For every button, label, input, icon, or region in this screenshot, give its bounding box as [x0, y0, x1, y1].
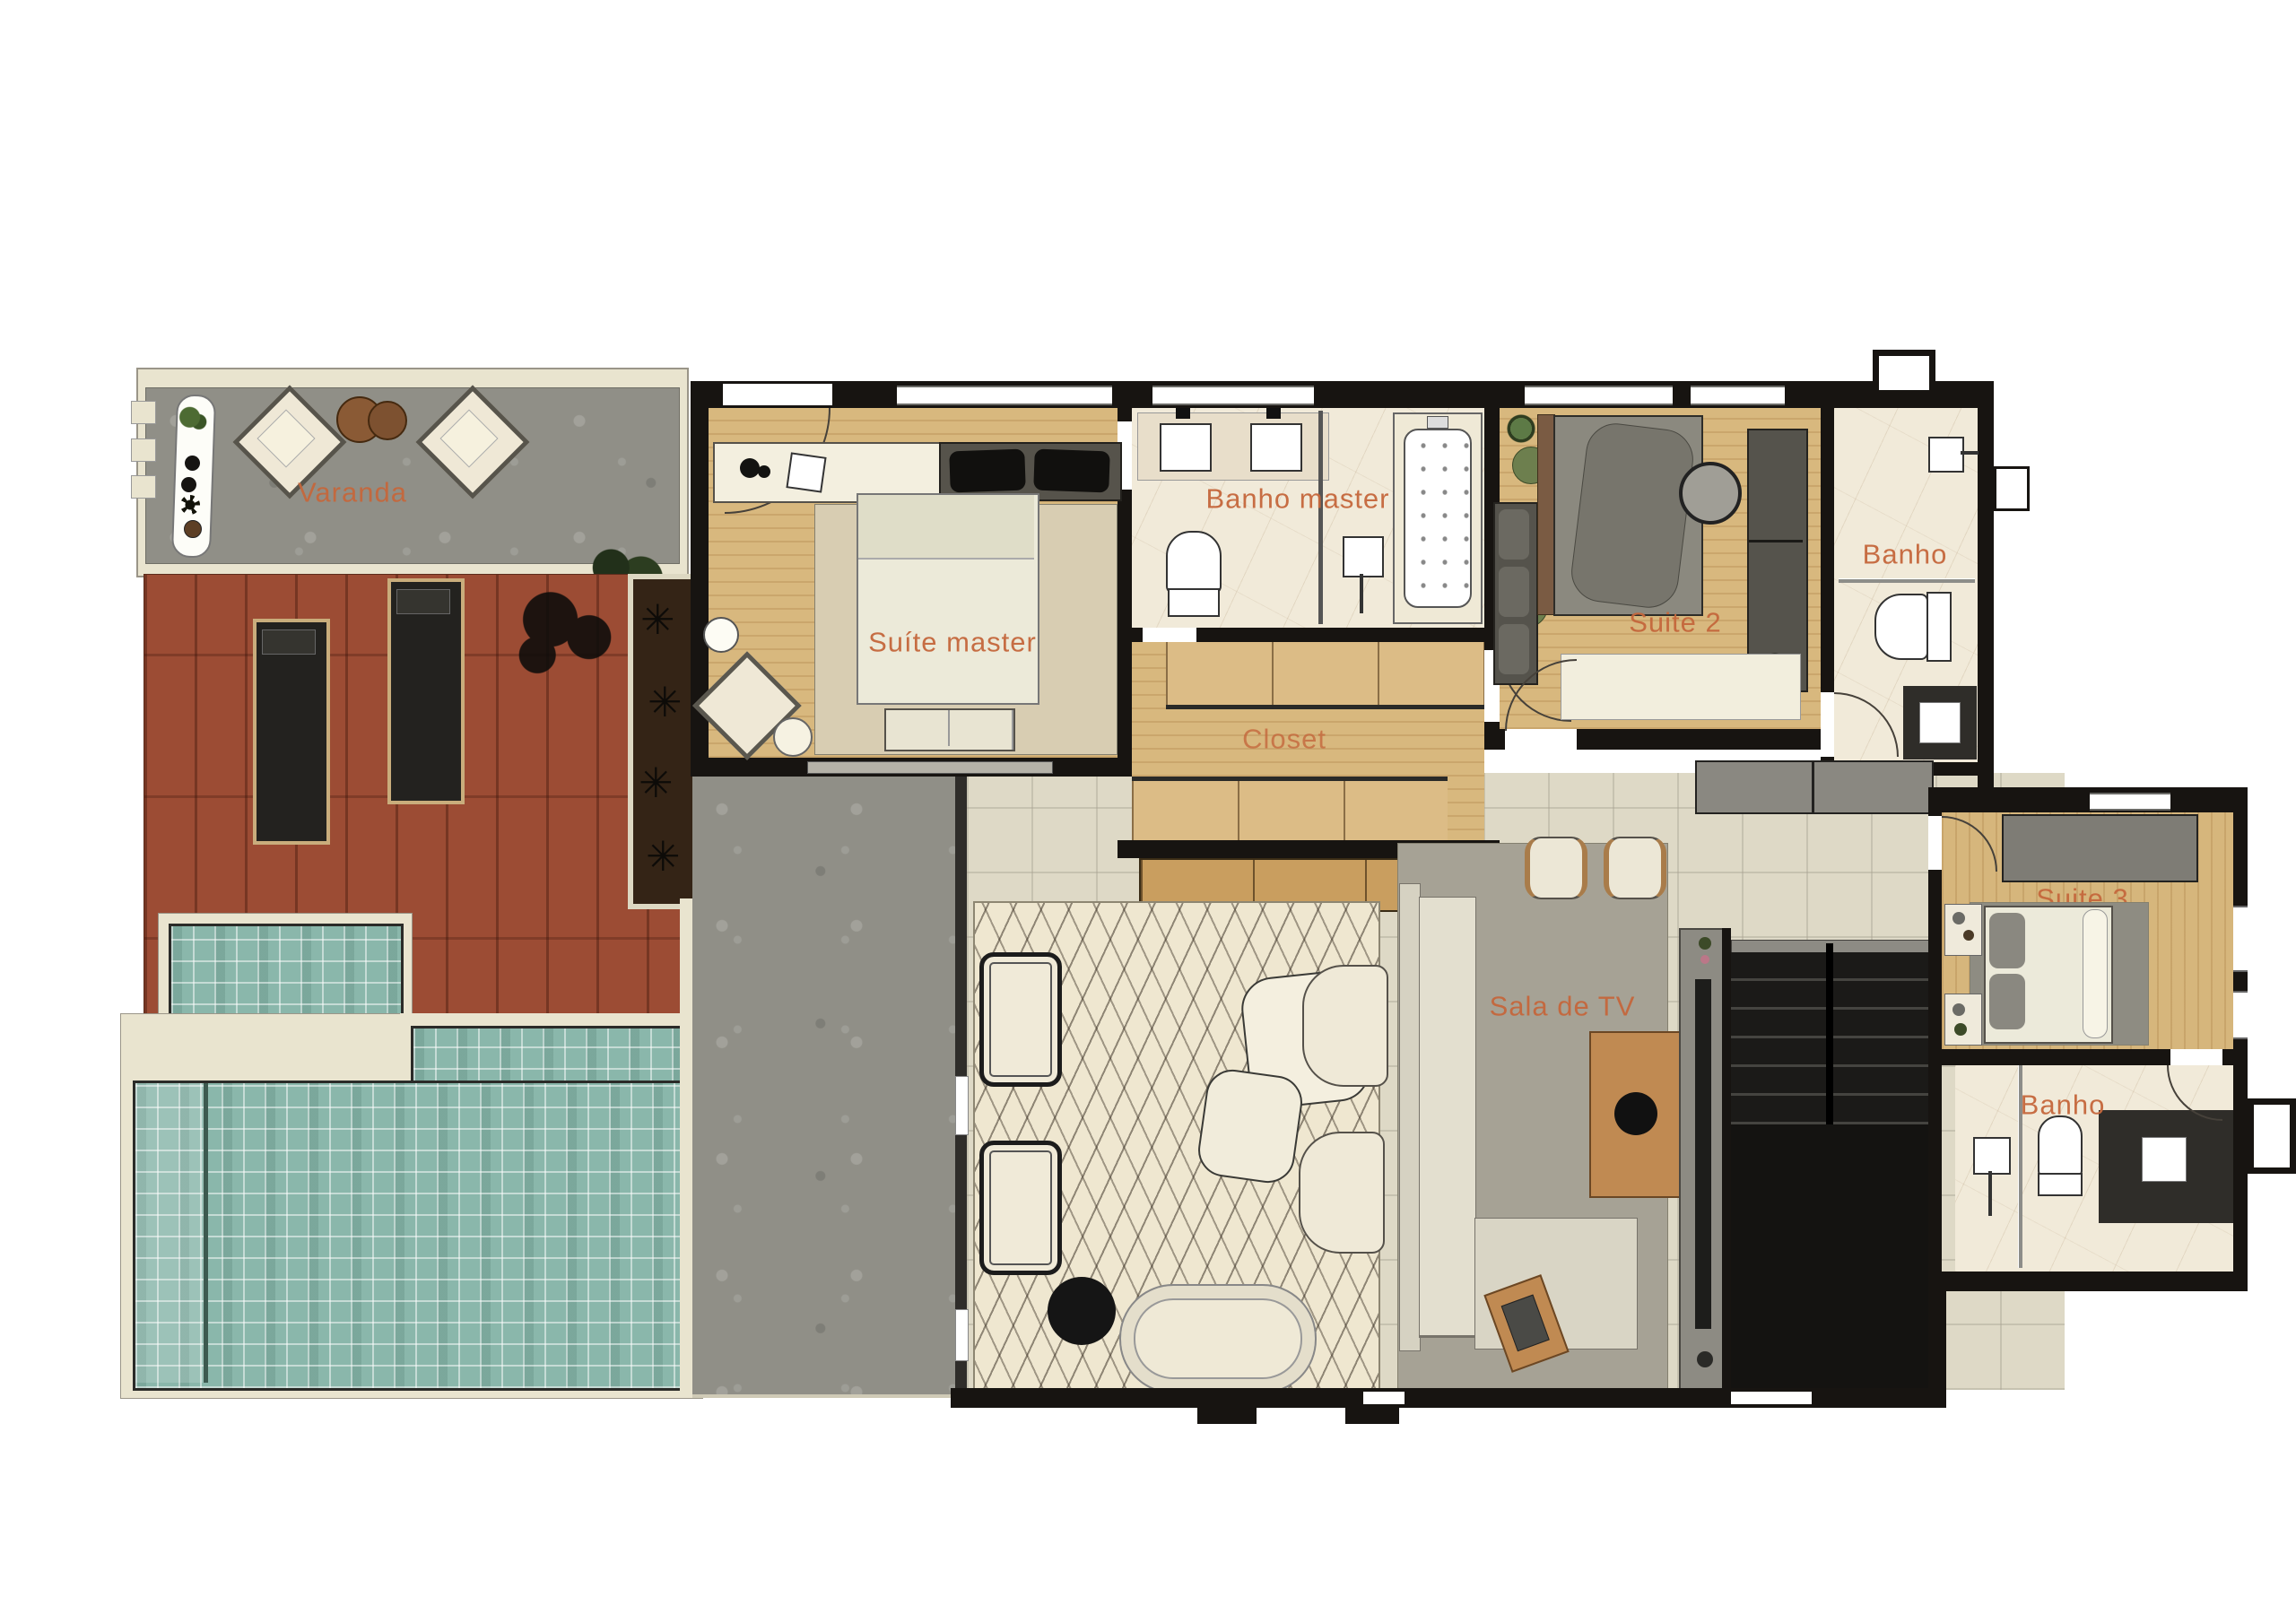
- wardrobe-divider: [1749, 540, 1803, 542]
- duvet-roll: [2083, 909, 2108, 1038]
- stone-patio: [692, 777, 956, 1398]
- pot-icon: [185, 456, 200, 471]
- room-label-banho-master: Banho master: [1206, 485, 1390, 513]
- bench-white: [1561, 654, 1801, 720]
- wall-stub: [1197, 1408, 1257, 1424]
- toilet-tank: [1926, 592, 1952, 662]
- sliding-door-glass: [955, 1309, 969, 1361]
- wall-suite3-east: [2233, 787, 2248, 1291]
- sofa-back: [1399, 883, 1421, 1351]
- bath-counter: [2099, 1110, 2233, 1223]
- room-label-suite-2: Suite 2: [1629, 609, 1722, 637]
- wall-stub: [131, 475, 156, 499]
- sink: [1250, 423, 1302, 472]
- patio-curb: [680, 898, 692, 1394]
- plant-icon: [180, 495, 200, 515]
- shower-stem: [1961, 451, 1979, 455]
- pot-icon: [181, 477, 196, 492]
- bench-divider: [948, 710, 950, 746]
- potted-plant-icon: [1507, 414, 1535, 443]
- wall-banho3-south: [1942, 1271, 2248, 1291]
- door-opening: [1143, 628, 1196, 642]
- door-opening: [1731, 1392, 1812, 1404]
- toilet: [1166, 531, 1222, 594]
- bed-suite3: [1984, 906, 2113, 1044]
- faucet-icon: [1266, 408, 1281, 419]
- wall-stub: [1345, 1408, 1399, 1424]
- door-opening: [1928, 816, 1942, 870]
- pot-icon: [184, 520, 202, 538]
- sliding-door: [807, 761, 1053, 774]
- window: [1152, 386, 1314, 405]
- window-shaft: [2248, 1098, 2296, 1174]
- side-table-black: [1048, 1277, 1116, 1345]
- room-label-banho-2: Banho: [1863, 541, 1948, 568]
- sofa-seat: [1419, 897, 1476, 1338]
- lounger-headrest: [396, 589, 450, 614]
- shower-stem: [1360, 574, 1363, 613]
- pouf-sketch: [1195, 1066, 1306, 1186]
- sliding-door-glass: [955, 1076, 969, 1135]
- dresser: [2002, 814, 2198, 882]
- shower-stem: [1988, 1171, 1992, 1216]
- sofa-cushion: [1499, 509, 1529, 560]
- candle-decor-icon: [758, 465, 770, 478]
- toilet: [2038, 1115, 2083, 1176]
- nightstand: [1944, 904, 1982, 956]
- lounger-headrest: [262, 629, 316, 655]
- plant-icon: ✳: [648, 678, 683, 726]
- floor-plan: Varanda ✳ ✳ ✳ ✳: [0, 0, 2296, 1623]
- wardrobe: [1747, 429, 1808, 692]
- swivel-chair: [1299, 1132, 1385, 1254]
- accent-chair: [979, 952, 1062, 1087]
- closet-cabinets-bottom: [1132, 777, 1448, 848]
- standing-mirror-round: [1679, 462, 1742, 525]
- plant-icon: [178, 404, 208, 434]
- bed-pillow-large: [1568, 420, 1696, 611]
- plant-icon: ✳: [646, 832, 681, 881]
- pouf-round: [773, 717, 813, 757]
- tray-icon: [786, 452, 826, 492]
- remote-icon: [1501, 1295, 1550, 1352]
- sofa-cushion: [1499, 624, 1529, 674]
- nightstand: [1944, 994, 1982, 1046]
- bed-master: [857, 493, 1039, 705]
- bathtub: [1393, 412, 1483, 624]
- shower-glass: [1839, 578, 1975, 583]
- tv-screen: [1695, 979, 1711, 1329]
- plant-icon: ✳: [640, 595, 675, 644]
- coffee-table-wood: [1589, 1031, 1683, 1198]
- speaker-icon: [1697, 1351, 1713, 1367]
- room-label-banho-3: Banho: [2021, 1091, 2106, 1119]
- sink: [2142, 1137, 2187, 1182]
- room-label-sala-de-tv: Sala de TV: [1490, 993, 1636, 1020]
- sofa-cushion: [1499, 567, 1529, 617]
- bedroom-sofa: [1493, 502, 1538, 685]
- duvet-fold: [858, 495, 1034, 560]
- bathtub-basin: [1404, 429, 1472, 608]
- candle-decor-icon: [740, 458, 760, 478]
- wall-tv-stairs: [1722, 928, 1731, 1390]
- window: [1525, 386, 1673, 405]
- table-decor-black: [1614, 1092, 1657, 1135]
- window: [1691, 386, 1785, 405]
- shower-head-icon: [1343, 536, 1384, 577]
- window-shaft: [1873, 350, 1935, 396]
- door-opening: [723, 384, 832, 405]
- window: [2090, 793, 2170, 811]
- barrel-stool: [1604, 837, 1666, 899]
- shower-head-icon: [1973, 1137, 2011, 1175]
- room-label-closet: Closet: [1242, 725, 1326, 753]
- barrel-stool: [1525, 837, 1587, 899]
- swivel-chair: [1302, 965, 1388, 1087]
- wall-stub: [1994, 466, 2030, 511]
- sun-lounger: [253, 619, 330, 845]
- partition: [1318, 411, 1323, 624]
- plant-icon: ✳: [639, 759, 674, 807]
- bed-suite2-headboard: [1537, 414, 1555, 615]
- window: [2233, 906, 2248, 972]
- wall-stub: [131, 401, 156, 424]
- toilet: [1874, 594, 1928, 660]
- bed-bench: [884, 708, 1015, 751]
- plant-icon: [1954, 1023, 1967, 1036]
- bed-pillow: [1989, 974, 2025, 1029]
- decor-icon: [1963, 930, 1974, 941]
- door-opening: [1363, 1392, 1405, 1404]
- tree-silhouette: [499, 572, 628, 690]
- window: [897, 386, 1112, 405]
- tub-control: [1427, 416, 1448, 429]
- window: [2233, 991, 2248, 1039]
- pool-steps: [135, 1083, 208, 1383]
- pillow: [949, 449, 1026, 493]
- door-opening: [1821, 692, 1834, 757]
- door-opening: [2170, 1049, 2222, 1065]
- faucet-icon: [1176, 408, 1190, 419]
- stairs-rail: [1826, 943, 1833, 1124]
- shower-head-icon: [1928, 437, 1964, 473]
- sink: [1919, 702, 1961, 743]
- plant-icon: [1699, 937, 1711, 950]
- toilet-base: [2038, 1173, 2083, 1196]
- accent-chair: [979, 1141, 1062, 1275]
- wall-connector: [1928, 1291, 1946, 1408]
- sink: [1160, 423, 1212, 472]
- bed-suite2: [1553, 415, 1703, 616]
- pillow: [1033, 449, 1110, 493]
- decor-icon: [1952, 1003, 1965, 1016]
- toilet-tank: [1168, 588, 1220, 617]
- decor-icon: [1700, 955, 1709, 964]
- sun-lounger: [387, 578, 465, 804]
- room-label-varanda: Varanda: [298, 479, 407, 507]
- wall-stub: [131, 438, 156, 462]
- bath-counter: [1903, 686, 1977, 759]
- ottoman-oval: [1119, 1284, 1317, 1393]
- walkway-sideboard: [1695, 760, 1934, 814]
- door-opening: [1505, 729, 1577, 750]
- lamp-icon: [1952, 912, 1965, 924]
- stairs-landing: [1731, 1124, 1928, 1390]
- main-pool: [133, 1081, 696, 1391]
- bed-pillow: [1989, 913, 2025, 968]
- side-table-round: [703, 617, 739, 653]
- wall-suite3-north: [1928, 787, 2248, 812]
- closet-cabinets-top: [1166, 642, 1484, 709]
- room-label-suite-master: Suíte master: [868, 629, 1037, 656]
- north-wall: [691, 381, 1994, 408]
- coffee-table-round: [368, 401, 407, 440]
- wall-east-outer: [1978, 381, 1994, 787]
